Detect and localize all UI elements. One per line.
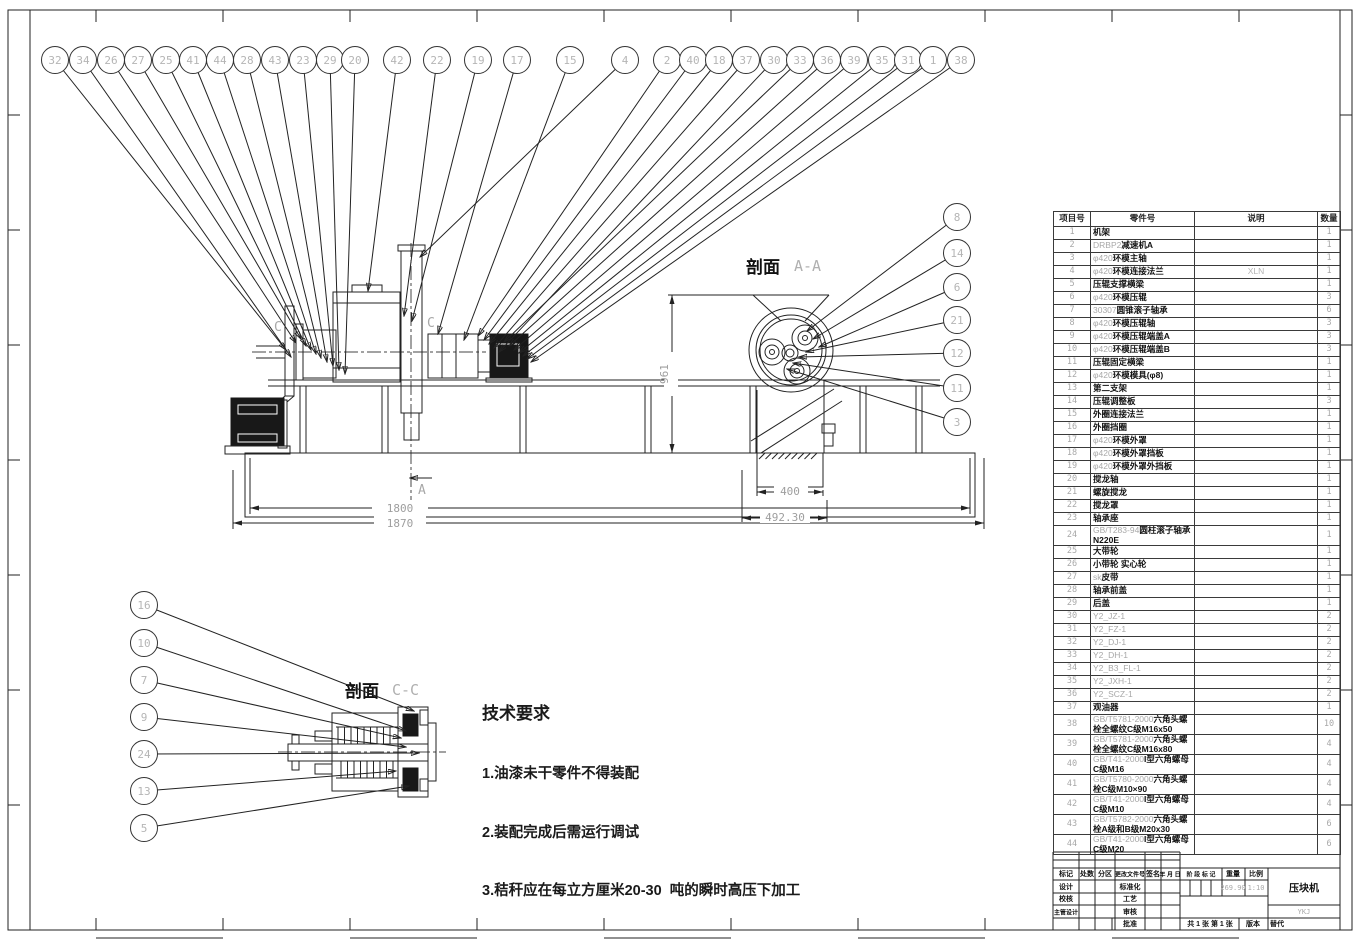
craft-label: 工艺 — [1123, 894, 1137, 904]
part-name: 环模外罩外挡板 — [1113, 461, 1173, 471]
table-row: 27sk皮带1 — [1054, 572, 1341, 585]
main-view: 1800 1870 A C C — [225, 243, 984, 530]
leader-line — [509, 60, 827, 346]
balloon-number: 11 — [950, 382, 963, 395]
leader-line — [799, 353, 957, 357]
part-code: φ420 — [1093, 331, 1113, 341]
dim-main-outer: 1870 — [387, 517, 414, 530]
table-row: 29后盖1 — [1054, 598, 1341, 611]
part-name: 小带轮 实心轮 — [1093, 559, 1146, 569]
table-row: 31Y2_FZ-12 — [1054, 624, 1341, 637]
rev-header-count: 处数 — [1080, 869, 1094, 879]
leader-line — [523, 60, 908, 356]
balloon-number: 39 — [847, 54, 860, 67]
part-code: Y2_JXH-1 — [1093, 676, 1132, 686]
leader-line — [412, 60, 478, 321]
table-row: 9φ420环模压辊端盖A3 — [1054, 331, 1341, 344]
balloon-number: 16 — [137, 599, 150, 612]
leader-line — [345, 60, 355, 374]
page-info: 共 1 张 第 1 张 — [1187, 919, 1233, 929]
part-name: 螺旋搅龙 — [1093, 487, 1127, 497]
leader-line — [519, 60, 882, 353]
table-row: 43GB/T5782-2000六角头螺栓A级和B级M20x306 — [1054, 815, 1341, 835]
part-name: 搅龙轴 — [1093, 474, 1119, 484]
part-name: 轴承座 — [1093, 513, 1119, 523]
balloon-number: 24 — [137, 748, 151, 761]
part-code: Y2_SCZ-1 — [1093, 689, 1133, 699]
part-name: 环模压辊端盖A — [1113, 331, 1170, 341]
balloon-number: 42 — [390, 54, 403, 67]
standardize-label: 标准化 — [1120, 882, 1141, 892]
table-row: 17φ420环模外罩1 — [1054, 435, 1341, 448]
part-name: 压辊调整板 — [1093, 396, 1136, 406]
rev-header-date: 年 月 日 — [1159, 870, 1180, 879]
part-name: 环模模具(φ8) — [1113, 370, 1163, 380]
table-row: 44GB/T41-2000I型六角螺母C级M206 — [1054, 835, 1341, 855]
leader-line — [438, 60, 517, 334]
leader-line — [489, 60, 719, 344]
leader-line — [275, 60, 327, 362]
leader-line — [166, 60, 306, 346]
part-code: φ420 — [1093, 461, 1113, 471]
leader-line — [404, 60, 437, 316]
leader-line — [111, 60, 296, 343]
table-row: 37观油器1 — [1054, 702, 1341, 715]
part-code: φ420 — [1093, 344, 1113, 354]
balloon-number: 30 — [767, 54, 780, 67]
part-name: 压辊固定横梁 — [1093, 357, 1144, 367]
balloon-number: 31 — [901, 54, 914, 67]
parts-table: 项目号 零件号 说明 数量 1机架12DRBP2减速机A13φ420环模主轴14… — [1053, 211, 1341, 855]
part-code: sk — [1093, 572, 1102, 582]
table-row: 23轴承座1 — [1054, 513, 1341, 526]
leader-line — [144, 771, 396, 791]
balloon-number: 28 — [240, 54, 253, 67]
table-row: 19φ420环模外罩外挡板1 — [1054, 461, 1341, 474]
leader-line — [484, 60, 693, 340]
table-row: 16外圈挡圈1 — [1054, 422, 1341, 435]
table-row: 40GB/T41-2000I型六角螺母C级M164 — [1054, 755, 1341, 775]
table-row: 30Y2_JZ-12 — [1054, 611, 1341, 624]
balloon-number: 40 — [686, 54, 699, 67]
balloon-number: 21 — [950, 314, 963, 327]
rev-header-file: 更改文件号 — [1115, 870, 1145, 879]
leader-line — [193, 60, 311, 350]
balloon-number: 22 — [430, 54, 443, 67]
drawing-title: 压块机 — [1289, 880, 1319, 895]
technical-requirements: 技术要求 1.油漆未干零件不得装配 2.装配完成后需运行调试 3.秸秆应在每立方… — [482, 663, 837, 940]
part-name: 皮带 — [1102, 572, 1119, 582]
table-header-row: 项目号 零件号 说明 数量 — [1054, 212, 1341, 227]
cut-label-a: A — [418, 483, 426, 498]
leader-line — [504, 60, 800, 342]
leader-line — [368, 60, 397, 291]
balloon-number: 13 — [137, 785, 150, 798]
part-name: 第二支架 — [1093, 383, 1127, 393]
col-header-qty: 数量 — [1318, 212, 1341, 227]
drawing-sheet: 1800 1870 A C C 剖面 A-A 961 — [0, 0, 1360, 940]
scale-value: 1:10 — [1248, 884, 1265, 892]
balloon-number: 14 — [950, 247, 964, 260]
part-name: 外圈挡圈 — [1093, 422, 1127, 432]
table-row: 35Y2_JXH-12 — [1054, 676, 1341, 689]
balloon-number: 26 — [104, 54, 117, 67]
table-row: 6φ420环模压辊3 — [1054, 292, 1341, 305]
part-name: 环模外罩 — [1113, 435, 1147, 445]
table-row: 15外圈连接法兰1 — [1054, 409, 1341, 422]
balloon-number: 6 — [954, 281, 961, 294]
balloon-number: 18 — [712, 54, 725, 67]
part-name: 外圈连接法兰 — [1093, 409, 1144, 419]
balloon-number: 38 — [954, 54, 967, 67]
rev-header-sign: 签名 — [1146, 869, 1160, 879]
table-row: 28轴承前盖1 — [1054, 585, 1341, 598]
part-code: DRBP2 — [1093, 240, 1121, 250]
rev-header-zone: 分区 — [1098, 869, 1112, 879]
table-row: 26小带轮 实心轮1 — [1054, 559, 1341, 572]
replace-label: 替代 — [1270, 919, 1284, 929]
part-name: 环模外罩挡板 — [1113, 448, 1164, 458]
balloon-number: 44 — [213, 54, 227, 67]
balloon-number: 4 — [622, 54, 629, 67]
balloon-number: 17 — [510, 54, 523, 67]
table-row: 12φ420环模模具(φ8)1 — [1054, 370, 1341, 383]
leader-line — [138, 60, 301, 339]
col-header-desc: 说明 — [1195, 212, 1318, 227]
version-label: 版本 — [1246, 919, 1260, 929]
col-header-part-no: 零件号 — [1091, 212, 1195, 227]
part-name: 大带轮 — [1093, 546, 1119, 556]
table-row: 42GB/T41-2000I型六角螺母C级M104 — [1054, 795, 1341, 815]
table-row: 32Y2_DJ-12 — [1054, 637, 1341, 650]
part-name: 环模主轴 — [1113, 253, 1147, 263]
balloon-number: 32 — [48, 54, 61, 67]
dim-aa-total: 492.30 — [765, 511, 805, 524]
table-row: 36Y2_SCZ-12 — [1054, 689, 1341, 702]
leader-line — [303, 60, 333, 366]
leader-line — [144, 717, 406, 747]
balloon-number: 1 — [930, 54, 937, 67]
leader-line — [220, 60, 316, 354]
weight-value: 269.90 — [1220, 884, 1245, 892]
section-aa-name: A-A — [794, 257, 821, 275]
table-row: 11压辊固定横梁1 — [1054, 357, 1341, 370]
table-row: 2DRBP2减速机A1 — [1054, 240, 1341, 253]
table-row: 41GB/T5780-2000六角头螺栓C级M10×904 — [1054, 775, 1341, 795]
part-name: 环模压辊轴 — [1113, 318, 1156, 328]
balloon-number: 20 — [348, 54, 361, 67]
leader-line — [247, 60, 321, 358]
part-code: 30307 — [1093, 305, 1117, 315]
parts-table-body: 1机架12DRBP2减速机A13φ420环模主轴14φ420环模连接法兰XLN1… — [1054, 227, 1341, 855]
balloon-number: 43 — [268, 54, 281, 67]
part-code: φ420 — [1093, 253, 1113, 263]
part-name: 环模压辊 — [1113, 292, 1147, 302]
part-name: 观油器 — [1093, 702, 1119, 712]
tech-line: 3.秸秆应在每立方厘米20-30 吨的瞬时高压下加工 — [482, 880, 837, 903]
leader-line — [494, 60, 746, 348]
balloon-number: 9 — [141, 711, 148, 724]
leader-line — [144, 786, 409, 828]
table-row: 3φ420环模主轴1 — [1054, 253, 1341, 266]
leader-line — [531, 60, 961, 362]
leader-line — [144, 605, 414, 711]
leader-line — [55, 60, 286, 350]
balloon-number: 33 — [793, 54, 806, 67]
table-row: 39GB/T5781-2000六角头螺栓全螺纹C级M16x804 — [1054, 735, 1341, 755]
part-code: Y2_FZ-1 — [1093, 624, 1126, 634]
table-row: 730307圆锥滚子轴承6 — [1054, 305, 1341, 318]
balloon-number: 8 — [954, 211, 961, 224]
leader-line — [807, 217, 957, 331]
leader-line — [420, 60, 625, 257]
part-code: φ420 — [1093, 448, 1113, 458]
part-name: 圆锥滚子轴承 — [1117, 305, 1168, 315]
chief-design-label: 主管设计 — [1054, 908, 1078, 917]
leader-line — [787, 369, 957, 422]
balloon-number: 37 — [739, 54, 752, 67]
col-header-item-no: 项目号 — [1054, 212, 1091, 227]
leader-line — [793, 363, 957, 388]
section-cc-name: C-C — [392, 681, 419, 699]
part-code: φ420 — [1093, 318, 1113, 328]
table-row: 14压辊调整板3 — [1054, 396, 1341, 409]
table-row: 5压辊支撑横梁1 — [1054, 279, 1341, 292]
approve-label: 批准 — [1123, 919, 1137, 929]
part-name: 压辊支撑横梁 — [1093, 279, 1144, 289]
cut-label-c-left: C — [274, 320, 282, 335]
balloon-number: 10 — [137, 637, 150, 650]
section-aa-title: 剖面 — [746, 257, 780, 277]
balloon-number: 7 — [141, 674, 148, 687]
tech-title: 技术要求 — [482, 699, 837, 724]
balloon-number: 23 — [296, 54, 309, 67]
balloon-number: 35 — [875, 54, 888, 67]
part-code: φ420 — [1093, 370, 1113, 380]
balloon-number: 19 — [471, 54, 484, 67]
balloon-number: 34 — [76, 54, 90, 67]
table-row: 34Y2_B3_FL-12 — [1054, 663, 1341, 676]
balloon-number: 12 — [950, 347, 963, 360]
part-code: φ420 — [1093, 435, 1113, 445]
part-code: Y2_B3_FL-1 — [1093, 663, 1141, 673]
tech-line: 2.装配完成后需运行调试 — [482, 822, 837, 845]
balloon-number: 5 — [141, 822, 148, 835]
part-code: Y2_JZ-1 — [1093, 611, 1125, 621]
dim-aa-base: 400 — [780, 485, 800, 498]
part-name: 机架 — [1093, 227, 1110, 237]
tech-line: 1.油漆未干零件不得装配 — [482, 763, 837, 786]
part-code: φ420 — [1093, 266, 1113, 276]
table-row: 33Y2_DH-12 — [1054, 650, 1341, 663]
balloon-number: 29 — [323, 54, 336, 67]
table-row: 22搅龙罩1 — [1054, 500, 1341, 513]
balloon-number: 15 — [563, 54, 576, 67]
table-row: 13第二支架1 — [1054, 383, 1341, 396]
rev-header-mark: 标记 — [1059, 869, 1073, 879]
leader-line — [144, 753, 419, 754]
leader-line — [806, 320, 957, 352]
balloon-number: 36 — [820, 54, 833, 67]
audit-label: 审核 — [1123, 907, 1137, 917]
balloon-number: 25 — [159, 54, 172, 67]
table-row: 20搅龙轴1 — [1054, 474, 1341, 487]
dim-main-inner: 1800 — [387, 502, 414, 515]
design-label: 设计 — [1059, 882, 1073, 892]
check-label: 校核 — [1059, 894, 1073, 904]
part-code: Y2_DH-1 — [1093, 650, 1128, 660]
balloon-number: 3 — [954, 416, 961, 429]
stage-mark-label: 阶 段 标 记 — [1186, 870, 1215, 879]
part-name: 后盖 — [1093, 598, 1110, 608]
table-row: 1机架1 — [1054, 227, 1341, 240]
section-cc: 剖面 C-C — [278, 681, 446, 797]
drawing-code: YKJ — [1298, 908, 1311, 916]
weight-label: 重量 — [1226, 869, 1240, 879]
table-row: 8φ420环模压辊轴3 — [1054, 318, 1341, 331]
scale-label: 比例 — [1249, 869, 1263, 879]
table-row: 25大带轮1 — [1054, 546, 1341, 559]
leader-line — [330, 60, 339, 370]
part-name: 环模压辊端盖B — [1113, 344, 1170, 354]
dim-aa-height: 961 — [658, 364, 671, 384]
part-code: φ420 — [1093, 292, 1113, 302]
table-row: 21螺旋搅龙1 — [1054, 487, 1341, 500]
leader-line — [819, 287, 957, 347]
part-name: 环模连接法兰 — [1113, 266, 1164, 276]
part-name: 轴承前盖 — [1093, 585, 1127, 595]
part-name: 减速机A — [1121, 240, 1153, 250]
part-name: 搅龙罩 — [1093, 500, 1119, 510]
leader-line — [478, 60, 667, 336]
table-row: 4φ420环模连接法兰XLN1 — [1054, 266, 1341, 279]
part-code: Y2_DJ-1 — [1093, 637, 1126, 647]
table-row: 38GB/T5781-2000六角头螺栓全螺纹C级M16x5010 — [1054, 715, 1341, 735]
table-row: 10φ420环模压辊端盖B3 — [1054, 344, 1341, 357]
balloon-number: 41 — [186, 54, 199, 67]
leader-line — [83, 60, 291, 357]
table-row: 24GB/T283-94圆柱滚子轴承N220E1 — [1054, 526, 1341, 546]
cut-label-c-right: C — [427, 316, 435, 331]
table-row: 18φ420环模外罩挡板1 — [1054, 448, 1341, 461]
balloon-number: 27 — [131, 54, 144, 67]
balloon-number: 2 — [664, 54, 671, 67]
leader-line — [527, 60, 933, 359]
